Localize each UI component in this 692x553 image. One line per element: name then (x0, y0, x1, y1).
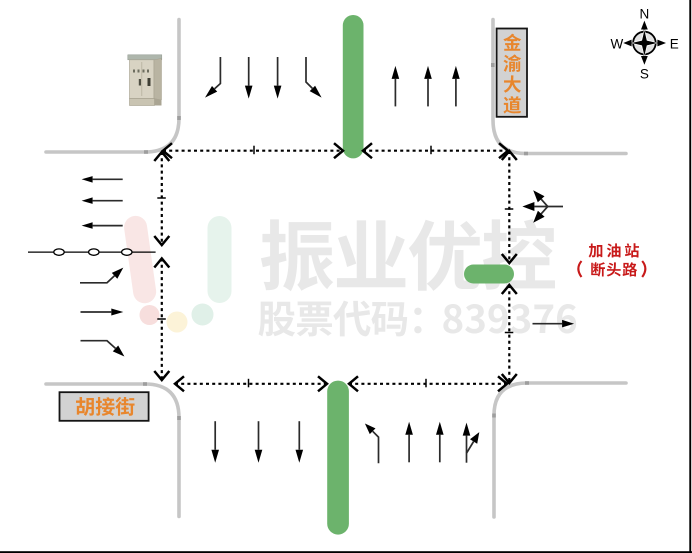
svg-text:E: E (670, 36, 679, 51)
svg-text:N: N (640, 7, 650, 22)
svg-text:S: S (640, 66, 649, 81)
svg-text:W: W (611, 36, 624, 51)
